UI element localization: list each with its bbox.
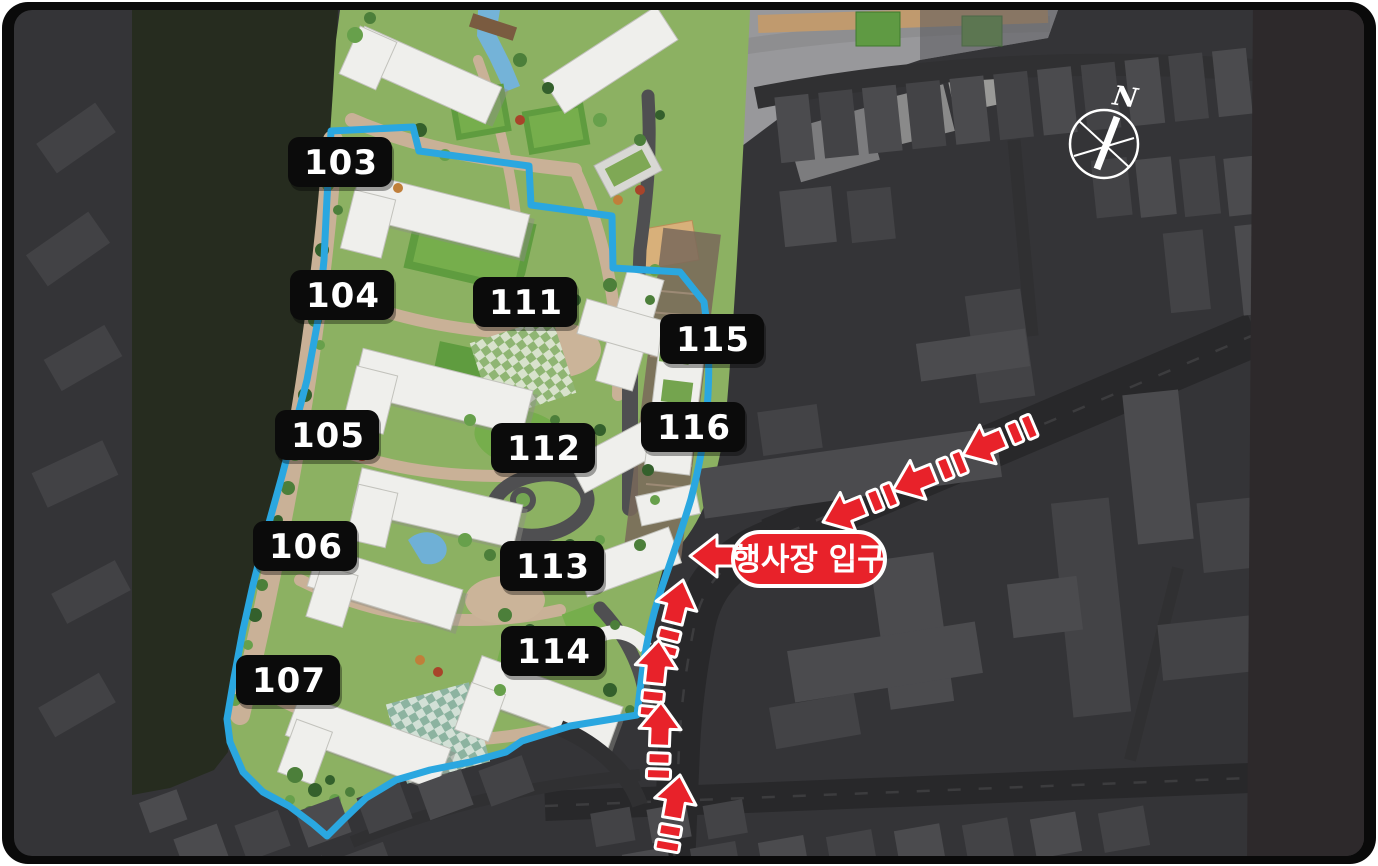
map-image: 행사장 입구 103 104 105 106 107: [0, 0, 1378, 866]
entrance-badge-label: 행사장 입구: [732, 542, 885, 578]
svg-text:103: 103: [304, 143, 378, 183]
building-label-106: 106: [253, 521, 359, 575]
building-label-111: 111: [473, 277, 579, 331]
svg-text:113: 113: [516, 547, 590, 587]
site-map-screenshot: 행사장 입구 103 104 105 106 107: [0, 0, 1378, 866]
building-label-104: 104: [290, 270, 396, 324]
svg-text:115: 115: [676, 320, 750, 360]
svg-text:107: 107: [252, 661, 326, 701]
svg-text:112: 112: [507, 429, 581, 469]
svg-text:114: 114: [517, 632, 591, 672]
svg-text:111: 111: [489, 283, 563, 323]
building-label-105: 105: [275, 410, 381, 464]
building-label-116: 116: [641, 402, 747, 456]
building-label-107: 107: [236, 655, 342, 709]
building-label-113: 113: [500, 541, 606, 595]
svg-text:116: 116: [657, 408, 731, 448]
svg-text:106: 106: [269, 527, 343, 567]
building-label-115: 115: [660, 314, 766, 368]
map-edge-band: [1247, 0, 1378, 866]
svg-text:104: 104: [306, 276, 380, 316]
entrance-badge: 행사장 입구: [732, 532, 885, 586]
building-label-103: 103: [288, 137, 394, 191]
building-label-112: 112: [491, 423, 597, 477]
building-label-114: 114: [501, 626, 607, 680]
svg-text:105: 105: [291, 416, 365, 456]
